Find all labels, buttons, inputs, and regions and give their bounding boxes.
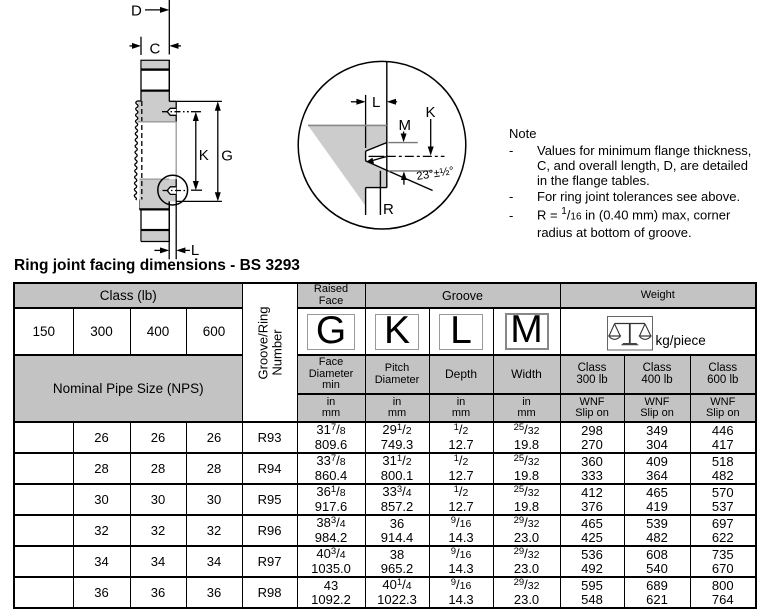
svg-text:D: D: [131, 3, 142, 20]
svg-text:K: K: [426, 104, 436, 121]
svg-text:G: G: [221, 148, 233, 165]
svg-text:M: M: [399, 117, 412, 134]
svg-text:R: R: [383, 201, 394, 218]
svg-text:23°±½°: 23°±½°: [416, 165, 455, 183]
svg-text:L: L: [372, 94, 380, 111]
svg-text:K: K: [199, 147, 209, 164]
svg-text:C: C: [150, 41, 161, 58]
